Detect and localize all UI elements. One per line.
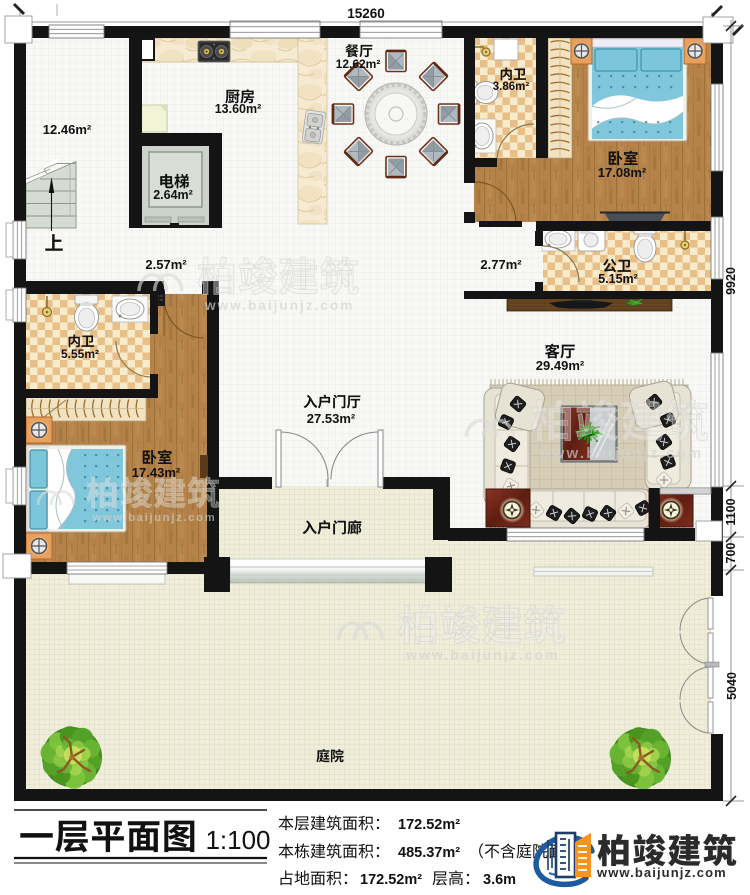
svg-text:www.baijunjz.com: www.baijunjz.com <box>204 298 354 313</box>
svg-text:www.baijunjz.com: www.baijunjz.com <box>538 445 704 462</box>
svg-text:www.baijunjz.com: www.baijunjz.com <box>92 512 217 524</box>
svg-text:5040: 5040 <box>725 672 739 700</box>
svg-text:12.46m²: 12.46m² <box>43 122 92 137</box>
svg-text:3.6m: 3.6m <box>483 872 516 888</box>
svg-text:2.57m²: 2.57m² <box>145 257 187 272</box>
svg-text:700: 700 <box>724 543 738 564</box>
svg-text:12.62m²: 12.62m² <box>336 57 381 71</box>
svg-text:13.60m²: 13.60m² <box>215 102 262 116</box>
svg-text:485.37m²: 485.37m² <box>398 845 460 861</box>
svg-text:17.43m²: 17.43m² <box>132 465 181 480</box>
svg-text:17.08m²: 17.08m² <box>598 165 647 180</box>
svg-text:172.52m²: 172.52m² <box>398 817 460 833</box>
svg-text:www.baijunjz.com: www.baijunjz.com <box>596 865 727 880</box>
svg-text:1:100: 1:100 <box>205 825 270 855</box>
svg-text:29.49m²: 29.49m² <box>536 358 585 373</box>
svg-text:5.55m²: 5.55m² <box>61 347 99 361</box>
svg-text:27.53m²: 27.53m² <box>307 411 356 426</box>
svg-text:2.64m²: 2.64m² <box>153 188 193 202</box>
svg-text:www.baijunjz.com: www.baijunjz.com <box>405 647 559 663</box>
svg-text:3.86m²: 3.86m² <box>493 81 530 93</box>
svg-text:172.52m²: 172.52m² <box>360 872 422 888</box>
svg-text:15260: 15260 <box>347 6 385 21</box>
svg-text:1100: 1100 <box>724 498 738 525</box>
svg-text:2.77m²: 2.77m² <box>480 257 522 272</box>
svg-text:9920: 9920 <box>724 267 738 295</box>
svg-text:5.15m²: 5.15m² <box>598 272 638 286</box>
